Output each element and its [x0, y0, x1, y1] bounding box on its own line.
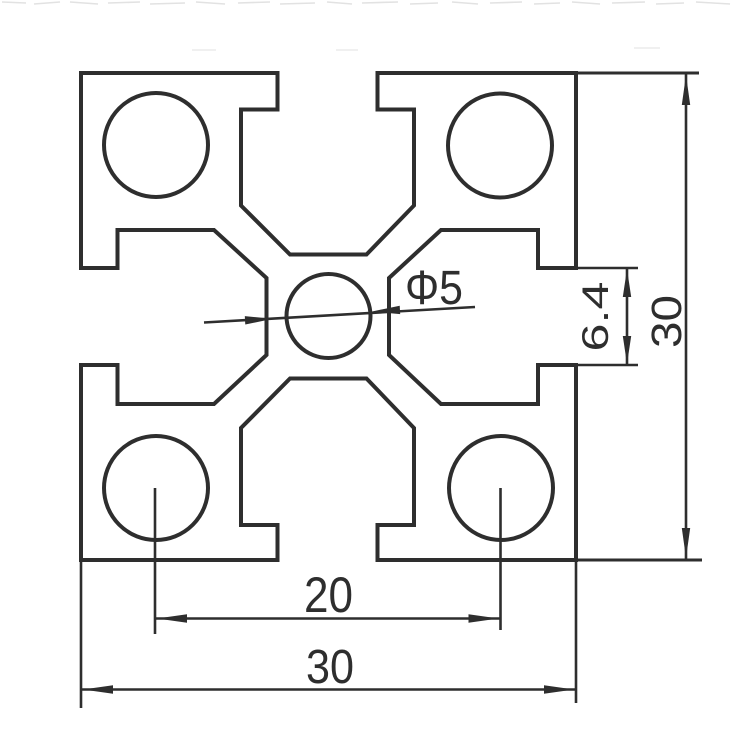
svg-text:30: 30 — [306, 641, 354, 694]
svg-text:6.4: 6.4 — [575, 282, 616, 352]
svg-text:20: 20 — [304, 567, 353, 623]
svg-text:Φ5: Φ5 — [405, 262, 463, 315]
svg-text:30: 30 — [643, 295, 691, 348]
